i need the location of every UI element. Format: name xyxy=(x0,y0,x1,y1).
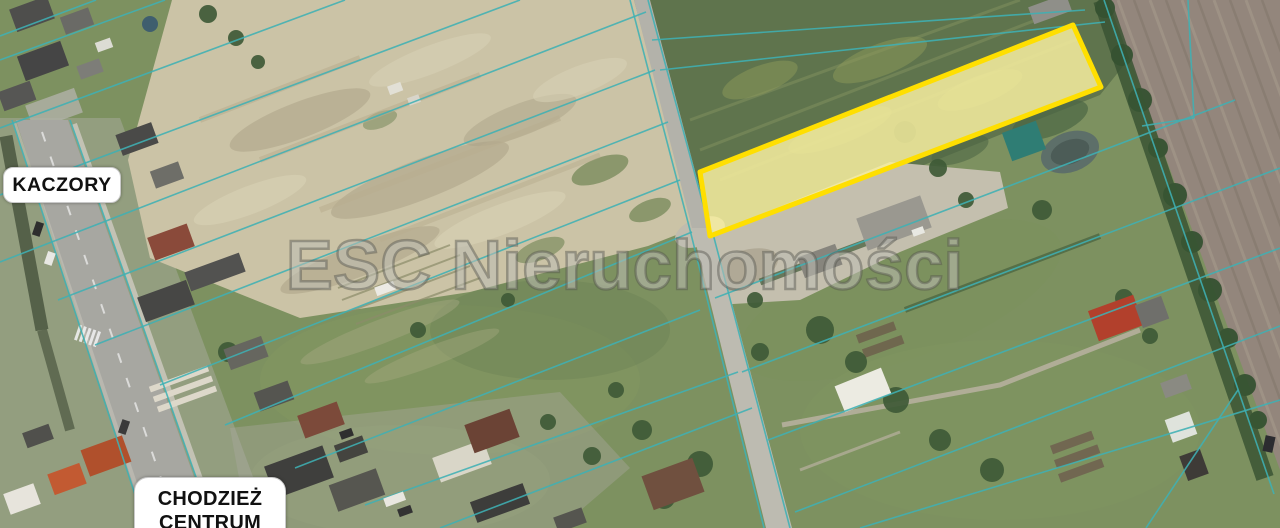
map-viewport[interactable]: ESC Nieruchomości KACZORY CHODZIEŻ CENTR… xyxy=(0,0,1280,528)
place-label-line2: CENTRUM xyxy=(159,511,261,528)
place-label-kaczory: KACZORY xyxy=(3,167,121,203)
place-label-chodziez-centrum: CHODZIEŻ CENTRUM xyxy=(134,477,286,528)
place-label-text: KACZORY xyxy=(12,174,111,197)
place-label-line1: CHODZIEŻ xyxy=(158,487,263,511)
aerial-photo xyxy=(0,0,1280,528)
